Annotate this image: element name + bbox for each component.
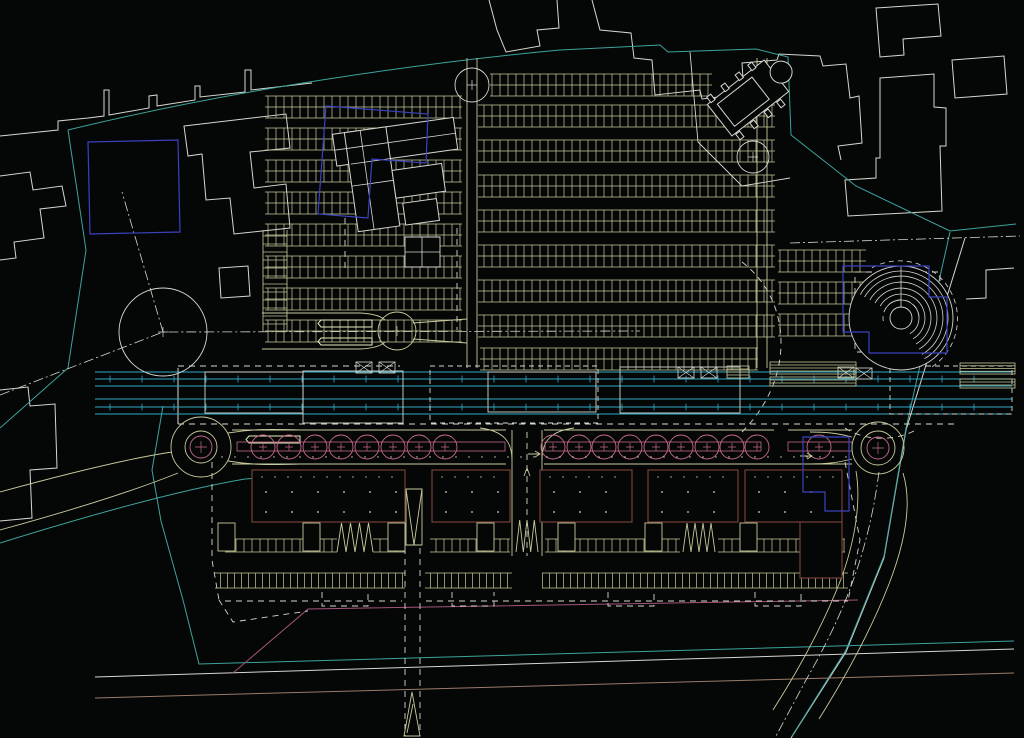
column-dot [605,511,607,513]
column-dot [661,511,663,513]
pavilion [645,523,662,551]
column-dot [291,511,293,513]
facade-tick-dot [614,476,615,477]
column-dot [369,491,371,493]
parking-band [265,288,462,310]
facade-tick-dot [287,476,288,477]
commercial-building [648,470,738,522]
facade-tick-dot [441,476,442,477]
facade-tick-dot [709,476,710,477]
building-outline [252,470,405,522]
column-dot [291,491,293,493]
commercial-building [745,470,842,522]
column-dot [687,491,689,493]
sidewalk-dot [832,456,833,457]
column-dot [758,511,760,513]
sidewalk-dot [780,456,781,457]
sidewalk-dot [286,456,287,457]
sidewalk-dot [572,456,573,457]
sidewalk-dot [325,456,326,457]
sidewalk-dot [676,456,677,457]
sidewalk-dot [494,456,495,457]
sidewalk-dot [299,456,300,457]
stall-ticks [430,539,510,552]
building-outline [540,470,632,522]
column-dot [758,491,760,493]
building-outline [648,470,738,522]
facade-tick-dot [683,476,684,477]
facade-tick-dot [493,476,494,477]
sidewalk-dot [403,456,404,457]
sidewalk-dot [416,456,417,457]
pavilion [388,523,405,551]
site-plan-canvas [0,0,1024,738]
column-dot [265,491,267,493]
parking-band [490,74,712,96]
facade-tick-dot [793,476,794,477]
column-dot [713,511,715,513]
facade-tick-dot [767,476,768,477]
column-dot [395,491,397,493]
column-dot [713,491,715,493]
column-dot [445,511,447,513]
facade-tick-dot [261,476,262,477]
facade-tick-dot [657,476,658,477]
building-outline [745,470,842,522]
column-dot [553,511,555,513]
sidewalk-dot [468,456,469,457]
column-dot [810,511,812,513]
column-dot [579,491,581,493]
parking-band [478,140,775,162]
facade-tick-dot [365,476,366,477]
sidewalk-dot [507,456,508,457]
sidewalk-dot [364,456,365,457]
facade-tick-dot [722,476,723,477]
parking-band [478,210,775,232]
facade-tick-dot [326,476,327,477]
sidewalk-dot [845,456,846,457]
parking-band [478,245,775,267]
parking-band [478,175,775,197]
sidewalk-dot [442,456,443,457]
sidewalk-dot [728,456,729,457]
sidewalk-dot [806,456,807,457]
facade-tick-dot [780,476,781,477]
parking-vband [263,230,287,332]
sidewalk-dot [637,456,638,457]
column-dot [369,511,371,513]
pavilion [740,523,757,551]
parking-band [478,315,775,337]
sidewalk-dot [260,456,261,457]
sidewalk-dot [533,456,534,457]
sidewalk-dot [455,456,456,457]
facade-tick-dot [391,476,392,477]
sidewalk-dot [715,456,716,457]
stall-row-dense [215,573,405,588]
sidewalk-dot [624,456,625,457]
sidewalk-dot [611,456,612,457]
parking-stall-ticks [263,230,287,332]
column-dot [445,491,447,493]
parking-band [265,96,462,118]
sidewalk-dot [767,456,768,457]
sidewalk-dot [312,456,313,457]
facade-tick-dot [575,476,576,477]
column-dot [784,511,786,513]
sidewalk-dot [247,456,248,457]
sidewalk-dot [793,456,794,457]
sidewalk-dot [429,456,430,457]
commercial-building [432,470,510,522]
facade-tick-dot [352,476,353,477]
column-dot [343,511,345,513]
building-outline [432,470,510,522]
column-dot [497,491,499,493]
facade-tick-dot [819,476,820,477]
sidewalk-dot [819,456,820,457]
facade-tick-dot [467,476,468,477]
parking-band [778,250,866,272]
pavilion [558,523,575,551]
stall-ticks [215,573,405,588]
column-dot [317,491,319,493]
column-dot [553,491,555,493]
stall-row-dense [425,573,512,588]
sidewalk-dot [663,456,664,457]
sidewalk-dot [273,456,274,457]
sidewalk-dot [585,456,586,457]
sidewalk-dot [741,456,742,457]
commercial-building [540,470,632,522]
column-dot [395,511,397,513]
sidewalk-dot [377,456,378,457]
column-dot [471,491,473,493]
sidewalk-dot [351,456,352,457]
facade-tick-dot [339,476,340,477]
sidewalk-dot [481,456,482,457]
column-dot [579,511,581,513]
column-dot [317,511,319,513]
sidewalk-dot [221,456,222,457]
pavilion [303,523,320,551]
stall-ticks [425,573,512,588]
parking-band [478,280,775,302]
column-dot [343,491,345,493]
facade-tick-dot [562,476,563,477]
commercial-building [800,522,842,578]
facade-tick-dot [832,476,833,477]
parking-band [265,320,462,342]
column-dot [265,511,267,513]
commercial-building [252,470,405,522]
site-plan-drawing [0,0,1024,738]
sidewalk-dot [338,456,339,457]
facade-tick-dot [754,476,755,477]
column-dot [687,511,689,513]
pavilion [218,523,235,551]
stall-row-outer [430,539,510,552]
sidewalk-dot [390,456,391,457]
building-outline [800,522,842,578]
facade-tick-dot [670,476,671,477]
column-dot [784,491,786,493]
sidewalk-dot [546,456,547,457]
column-dot [661,491,663,493]
facade-tick-dot [696,476,697,477]
facade-tick-dot [274,476,275,477]
facade-tick-dot [588,476,589,477]
sidewalk-dot [234,456,235,457]
facade-tick-dot [454,476,455,477]
sidewalk-dot [598,456,599,457]
facade-tick-dot [480,476,481,477]
column-dot [605,491,607,493]
sidewalk-dot [650,456,651,457]
sidewalk-dot [702,456,703,457]
facade-tick-dot [313,476,314,477]
column-dot [471,511,473,513]
sidewalk-dot [559,456,560,457]
facade-tick-dot [601,476,602,477]
farm-building-path [403,199,440,226]
facade-tick-dot [300,476,301,477]
sidewalk-dot [754,456,755,457]
facade-tick-dot [549,476,550,477]
column-dot [497,511,499,513]
facade-tick-dot [378,476,379,477]
sidewalk-dot [520,456,521,457]
pavilion [477,523,494,551]
sidewalk-dot [689,456,690,457]
facade-tick-dot [806,476,807,477]
